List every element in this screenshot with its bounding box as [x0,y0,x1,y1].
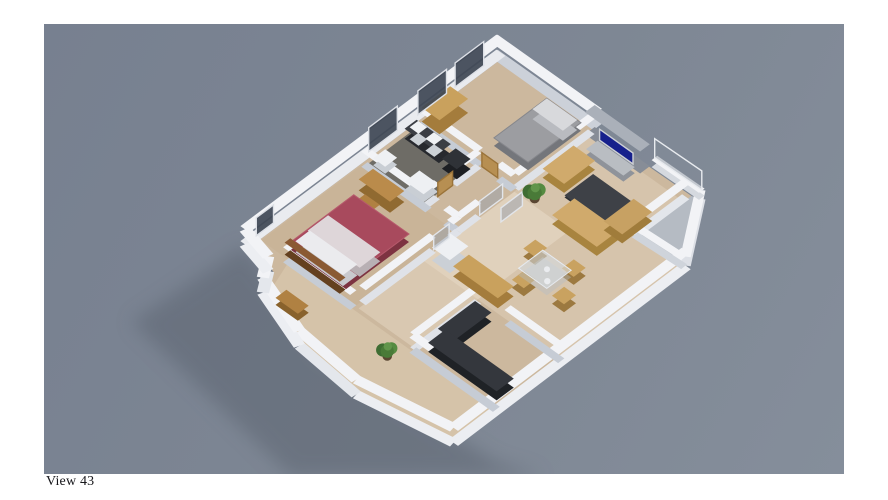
view-caption: View 43 [46,474,94,490]
render-canvas [44,24,844,474]
floor-plan-render [44,24,844,474]
